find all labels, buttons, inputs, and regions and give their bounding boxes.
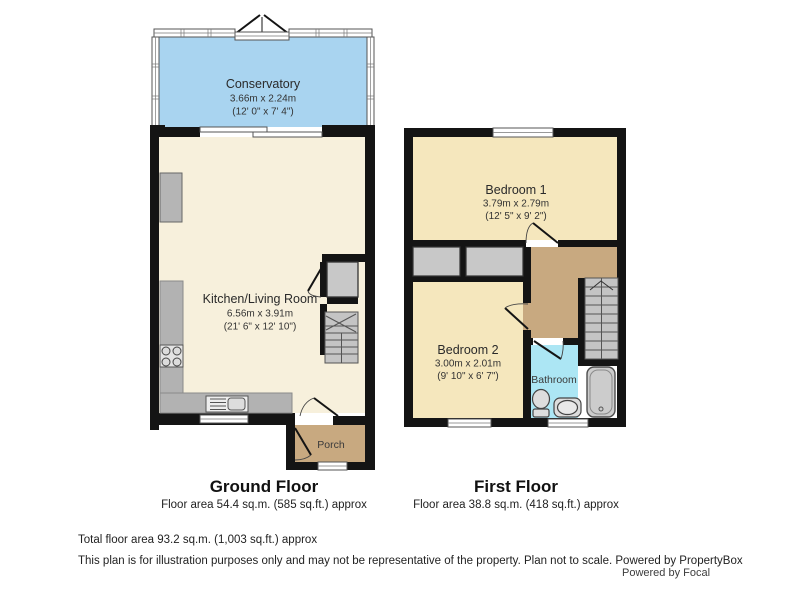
- ground-floor-plan: Conservatory 3.66m x 2.24m (12' 0" x 7' …: [148, 8, 380, 474]
- bathtub-icon: [587, 367, 615, 417]
- basin-icon: [554, 398, 581, 417]
- disclaimer: This plan is for illustration purposes o…: [78, 555, 743, 567]
- room-bedroom1: Bedroom 1 3.79m x 2.79m (12' 5" x 9' 2"): [413, 137, 618, 240]
- wardrobe-icon: [413, 247, 523, 276]
- total-floor-area: Total floor area 93.2 sq.m. (1,003 sq.ft…: [78, 534, 317, 546]
- room-porch: Porch: [295, 425, 365, 462]
- svg-text:3.00m x 2.01m: 3.00m x 2.01m: [435, 359, 501, 370]
- floorplan-page: Conservatory 3.66m x 2.24m (12' 0" x 7' …: [0, 0, 790, 612]
- bedroom1-label: Bedroom 1: [485, 183, 546, 197]
- svg-text:3.79m x 2.79m: 3.79m x 2.79m: [483, 199, 549, 210]
- bedroom2-window-icon: [448, 419, 491, 427]
- svg-text:(21' 6" x 12' 10"): (21' 6" x 12' 10"): [224, 322, 297, 333]
- toilet-icon: [533, 390, 550, 418]
- sink-unit-icon: [206, 396, 248, 412]
- room-conservatory: Conservatory 3.66m x 2.24m (12' 0" x 7' …: [152, 29, 374, 127]
- first-floor-title: First Floor: [404, 477, 628, 497]
- bedroom1-window-icon: [493, 128, 553, 137]
- conservatory-roof-icon: [235, 15, 289, 34]
- kitchen-unit-icon: [160, 173, 182, 222]
- ground-floor-title: Ground Floor: [148, 477, 380, 497]
- first-floor-plan: Bedroom 1 3.79m x 2.79m (12' 5" x 9' 2")…: [404, 126, 628, 430]
- stairs-ground-icon: [325, 312, 358, 363]
- ground-floor-area: Floor area 54.4 sq.m. (585 sq.ft.) appro…: [118, 499, 410, 511]
- svg-text:6.56m x 3.91m: 6.56m x 3.91m: [227, 309, 293, 320]
- stairs-first-icon: [585, 278, 618, 359]
- svg-text:3.66m x 2.24m: 3.66m x 2.24m: [230, 94, 296, 105]
- bathroom-window-icon: [548, 419, 588, 427]
- patio-sliding-door-icon: [200, 127, 322, 137]
- bathroom-label: Bathroom: [531, 374, 577, 386]
- first-floor-area: Floor area 38.8 sq.m. (418 sq.ft.) appro…: [374, 499, 658, 511]
- hob-icon: [160, 345, 183, 367]
- kitchen-window-icon: [200, 415, 248, 423]
- porch-window-icon: [318, 462, 347, 470]
- svg-text:(12' 0" x 7' 4"): (12' 0" x 7' 4"): [232, 107, 294, 118]
- conservatory-label: Conservatory: [226, 77, 301, 91]
- svg-text:(9' 10" x 6' 7"): (9' 10" x 6' 7"): [437, 371, 499, 382]
- svg-text:(12' 5" x 9' 2"): (12' 5" x 9' 2"): [485, 211, 547, 222]
- porch-label: Porch: [317, 439, 345, 451]
- room-bedroom2: Bedroom 2 3.00m x 2.01m (9' 10" x 6' 7"): [413, 282, 523, 418]
- cupboard-icon: [327, 262, 358, 297]
- powered-by-focal: Powered by Focal: [622, 567, 710, 579]
- bedroom2-label: Bedroom 2: [437, 343, 498, 357]
- kitchen-living-label: Kitchen/Living Room: [203, 292, 318, 306]
